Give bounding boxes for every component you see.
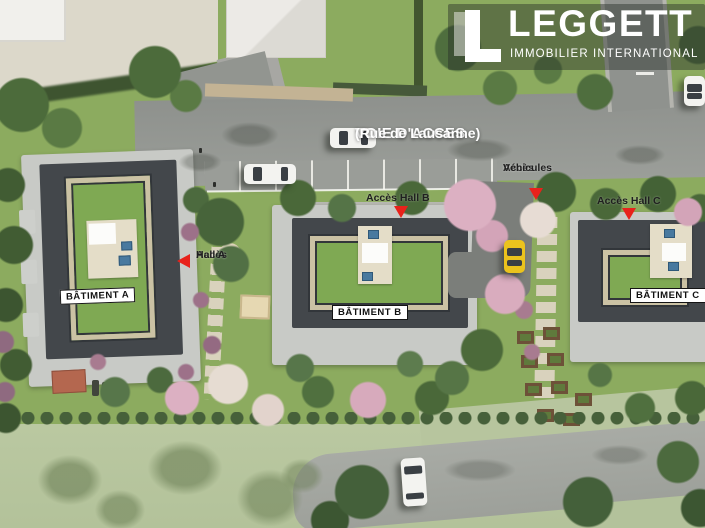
brand-tagline: IMMOBILIER INTERNATIONAL xyxy=(510,48,698,60)
parked-car xyxy=(400,457,427,507)
access-vehicles-line2: Véhicules xyxy=(503,162,552,174)
parked-car xyxy=(244,164,296,184)
access-hall-b-text: Accès Hall B xyxy=(366,192,430,204)
arrow-down-icon xyxy=(622,208,636,220)
parked-van xyxy=(684,76,705,106)
access-hall-a-line2: Hall A xyxy=(196,249,225,261)
pedestrian xyxy=(213,182,216,187)
pedestrian xyxy=(199,148,202,153)
brand-logo: LEGGETT IMMOBILIER INTERNATIONAL xyxy=(448,4,705,70)
leggett-l-icon xyxy=(454,10,500,62)
access-hall-c-text: Accès Hall C xyxy=(597,195,661,207)
blossom-trees-layer xyxy=(0,0,705,528)
site-plan-image: BÂTIMENT A BÂTIMENT B BÂTIMENT C xyxy=(0,0,705,528)
arrow-down-icon xyxy=(394,206,408,218)
street-name: (Rue de Lausanne) xyxy=(355,125,480,143)
arrow-down-icon xyxy=(529,188,543,200)
logo-bar xyxy=(465,49,501,62)
arrow-left-icon xyxy=(177,254,190,268)
yellow-car xyxy=(504,240,525,273)
brand-name: LEGGETT xyxy=(508,4,693,45)
